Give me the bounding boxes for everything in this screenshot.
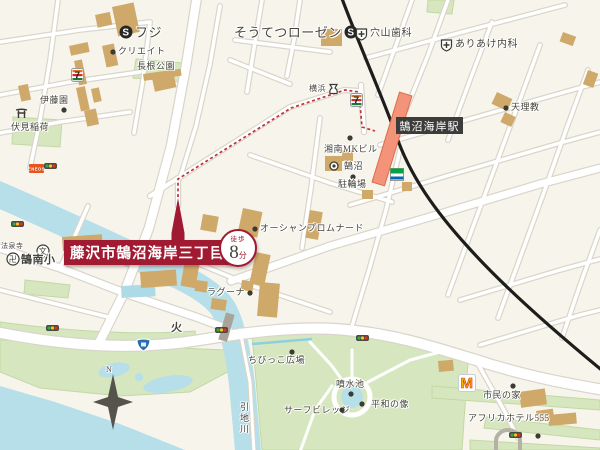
compass-n-label-label: N (106, 366, 112, 374)
supermarket-fuji: Sフジ (119, 25, 162, 39)
tenrikyo-label: 天理教 (511, 103, 540, 112)
yokohama-bank-label: 横浜 (309, 85, 326, 93)
dot-icon (252, 226, 258, 232)
ring-dot-icon (329, 161, 339, 171)
svg-text:7: 7 (74, 71, 80, 82)
dot-icon (347, 135, 353, 141)
africa-hotel: アフリカホテル555 (468, 414, 550, 423)
hospital-icon (440, 38, 453, 52)
traffic-icon (509, 432, 522, 438)
traffic-icon (44, 163, 57, 169)
peace-dot (359, 401, 365, 407)
seven-icon: 7 (71, 68, 84, 82)
s-circle-icon: S (119, 25, 133, 39)
dot-icon (61, 107, 67, 113)
hosenji-temple-icon: 卍 (6, 252, 20, 266)
itoen-dot (61, 107, 67, 113)
dot-icon (247, 290, 253, 296)
traffic-icon (215, 327, 228, 333)
shield-icon (136, 338, 151, 352)
shimin-no-ie: 市民の家 (483, 391, 521, 400)
svg-text:S: S (347, 28, 354, 39)
yokohama-bank: 横浜 (309, 83, 339, 95)
svg-text:卍: 卍 (9, 255, 18, 264)
walk-minutes: 8 (229, 242, 239, 264)
takane-park-label: 長根公園 (137, 62, 175, 71)
surf-dot (339, 407, 345, 413)
mcdonalds-icon: M (458, 374, 476, 392)
fountain-dot (348, 391, 354, 397)
fountain-pond: 噴水池 (336, 380, 365, 389)
dot-icon (503, 105, 509, 111)
kunan-elementary: 鵠南小 (21, 255, 56, 266)
fire-mark: 火 (171, 323, 183, 334)
hospital-icon (355, 27, 368, 41)
compass-n-label: N (106, 366, 112, 374)
dot-icon (510, 383, 516, 389)
itoen: 伊藤園 (40, 96, 69, 105)
svg-text:S: S (122, 28, 129, 39)
shonan-mk-bldg: 湘南MKビル (324, 145, 378, 154)
sotetsu-rosen-label: そうてつローゼン (234, 26, 342, 39)
dot-icon (110, 49, 116, 55)
shimin-dot (510, 383, 516, 389)
fushimi-inari-icon (15, 107, 28, 119)
signal-1 (44, 163, 57, 169)
traffic-icon (356, 335, 369, 341)
shonan-mk-bldg-label: 湘南MKビル (324, 145, 378, 154)
peace-statue: 平和の像 (371, 400, 409, 409)
familymart-icon (390, 168, 404, 181)
chibikko-plaza-label: ちびっこ広場 (248, 356, 305, 365)
bicycle-parking-label: 駐輪場 (338, 180, 367, 189)
dot-icon (535, 433, 541, 439)
hosenji-temple: 法泉寺 (1, 243, 24, 250)
eneos-icon: ENEOS (29, 164, 44, 173)
ocean-promenade: オーシャンプロムナード (252, 224, 364, 233)
access-map: Sフジクリエイト長根公園そうてつローゼンS穴山歯科ありあけ内科天理教横浜77湘南… (0, 0, 600, 450)
shimin-no-ie-label: 市民の家 (483, 391, 521, 400)
kugenuma: 鵠沼 (344, 162, 363, 171)
chibikko-plaza: ちびっこ広場 (248, 356, 305, 365)
seven-icon: 7 (350, 93, 363, 107)
signal-6 (509, 432, 522, 438)
route-shield (136, 338, 151, 352)
signal-5 (356, 335, 369, 341)
create-drugstore: クリエイト (110, 47, 166, 56)
supermarket-fuji-label: フジ (135, 26, 162, 39)
africa-hotel-label: アフリカホテル555 (468, 414, 550, 423)
tenrikyo: 天理教 (503, 103, 540, 112)
eneos: ENEOS (29, 164, 44, 173)
torii-icon (15, 107, 28, 119)
property-label: 藤沢市鵠沼海岸三丁目 (64, 240, 231, 265)
fire-mark-label: 火 (171, 323, 183, 334)
dot-icon (348, 391, 354, 397)
hikichi-river: 引地川 (239, 402, 248, 435)
signal-3 (46, 325, 59, 331)
bicycle-parking: 駐輪場 (338, 180, 367, 189)
hosenji-temple-label: 法泉寺 (1, 243, 24, 250)
create-drugstore-label: クリエイト (118, 47, 166, 56)
poi-markers: Sフジクリエイト長根公園そうてつローゼンS穴山歯科ありあけ内科天理教横浜77湘南… (0, 0, 600, 450)
property-label-text: 藤沢市鵠沼海岸三丁目 (70, 242, 225, 263)
seven-eleven-station: 7 (350, 93, 363, 107)
svg-text:7: 7 (353, 96, 359, 107)
dot-icon (339, 407, 345, 413)
mcdonalds: M (458, 374, 476, 392)
kugenuma-label: 鵠沼 (344, 162, 363, 171)
itoen-label: 伊藤園 (40, 96, 69, 105)
station-name-label: 鵠沼海岸駅 (396, 117, 463, 134)
signal-4 (215, 327, 228, 333)
anayama-dental-label: 穴山歯科 (370, 29, 412, 39)
dot-icon (359, 401, 365, 407)
walk-time-badge: 徒歩 8 分 (219, 229, 257, 267)
svg-text:M: M (461, 375, 474, 392)
signal-2 (11, 221, 24, 227)
africa-dot (535, 433, 541, 439)
traffic-icon (11, 221, 24, 227)
fountain-pond-label: 噴水池 (336, 380, 365, 389)
takane-park: 長根公園 (137, 62, 175, 71)
fushimi-inari-label: 伏見稲荷 (11, 123, 49, 132)
laguna: ラグーナ (207, 288, 253, 297)
shonan-mk-dot (347, 135, 353, 141)
peace-statue-label: 平和の像 (371, 400, 409, 409)
fushimi-inari: 伏見稲荷 (11, 123, 49, 132)
ariake-clinic: ありあけ内科 (440, 38, 518, 52)
svg-text:ENEOS: ENEOS (29, 167, 44, 172)
kunan-elementary-label: 鵠南小 (21, 255, 56, 266)
bank-icon (328, 83, 339, 95)
ocean-promenade-label: オーシャンプロムナード (260, 224, 364, 233)
ariake-clinic-label: ありあけ内科 (455, 40, 518, 50)
laguna-label: ラグーナ (207, 288, 245, 297)
kugenuma-post (329, 161, 339, 171)
anayama-dental: 穴山歯科 (355, 27, 412, 41)
hikichi-river-label: 引地川 (239, 402, 248, 435)
walk-suffix: 分 (239, 250, 247, 261)
temple-icon: 卍 (6, 252, 20, 266)
seven-eleven-north: 7 (71, 68, 84, 82)
familymart (390, 168, 404, 181)
traffic-icon (46, 325, 59, 331)
sotetsu-rosen: そうてつローゼンS (234, 25, 358, 39)
